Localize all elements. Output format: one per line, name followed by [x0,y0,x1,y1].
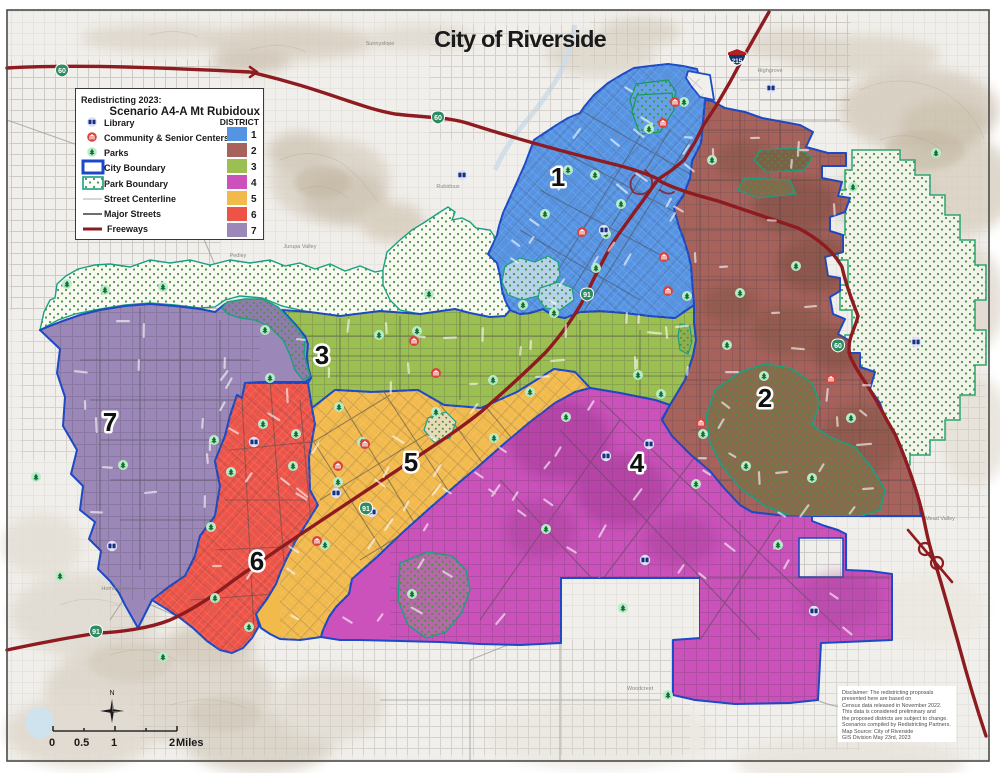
svg-text:91: 91 [583,292,591,299]
svg-text:60: 60 [58,68,66,75]
svg-text:3: 3 [315,340,329,370]
svg-text:Pedley: Pedley [230,253,247,259]
svg-text:Jurupa Valley: Jurupa Valley [284,244,317,250]
svg-text:DISTRICT: DISTRICT [220,117,260,127]
svg-text:1: 1 [111,737,117,749]
svg-text:Library: Library [104,118,135,128]
svg-text:2: 2 [251,146,257,157]
svg-text:6: 6 [250,546,264,576]
svg-text:215: 215 [732,58,743,65]
svg-text:0: 0 [49,737,55,749]
svg-text:Home Gardens: Home Gardens [101,586,139,592]
svg-text:6: 6 [251,210,257,221]
svg-text:Major Streets: Major Streets [104,209,161,219]
svg-text:3: 3 [251,162,257,173]
svg-text:7: 7 [103,407,117,437]
svg-text:Community & Senior Centers: Community & Senior Centers [104,133,229,143]
svg-text:Mead Valley: Mead Valley [925,516,955,522]
svg-text:2: 2 [758,383,772,413]
svg-text:7: 7 [251,226,257,237]
svg-text:5: 5 [404,447,418,477]
svg-text:Freeways: Freeways [107,224,148,234]
svg-text:0.5: 0.5 [74,737,89,749]
svg-text:N: N [109,690,114,697]
svg-text:Street Centerline: Street Centerline [104,194,176,204]
svg-text:60: 60 [834,343,842,350]
svg-text:1: 1 [251,130,257,141]
svg-text:Miles: Miles [176,737,204,749]
svg-text:Park Boundary: Park Boundary [104,179,168,189]
svg-text:Woodcrest: Woodcrest [627,686,654,692]
svg-text:Rubidoux: Rubidoux [436,184,459,190]
svg-text:4: 4 [630,448,645,478]
svg-text:Redistricting 2023:: Redistricting 2023: [81,95,162,105]
svg-text:2: 2 [169,737,175,749]
svg-text:60: 60 [434,115,442,122]
svg-text:1: 1 [551,162,565,192]
svg-text:Parks: Parks [104,148,129,158]
svg-text:5: 5 [251,194,257,205]
svg-text:91: 91 [92,629,100,636]
svg-text:91: 91 [362,506,370,513]
svg-text:Highgrove: Highgrove [757,68,782,74]
svg-text:4: 4 [251,178,257,189]
svg-text:City Boundary: City Boundary [104,163,166,173]
